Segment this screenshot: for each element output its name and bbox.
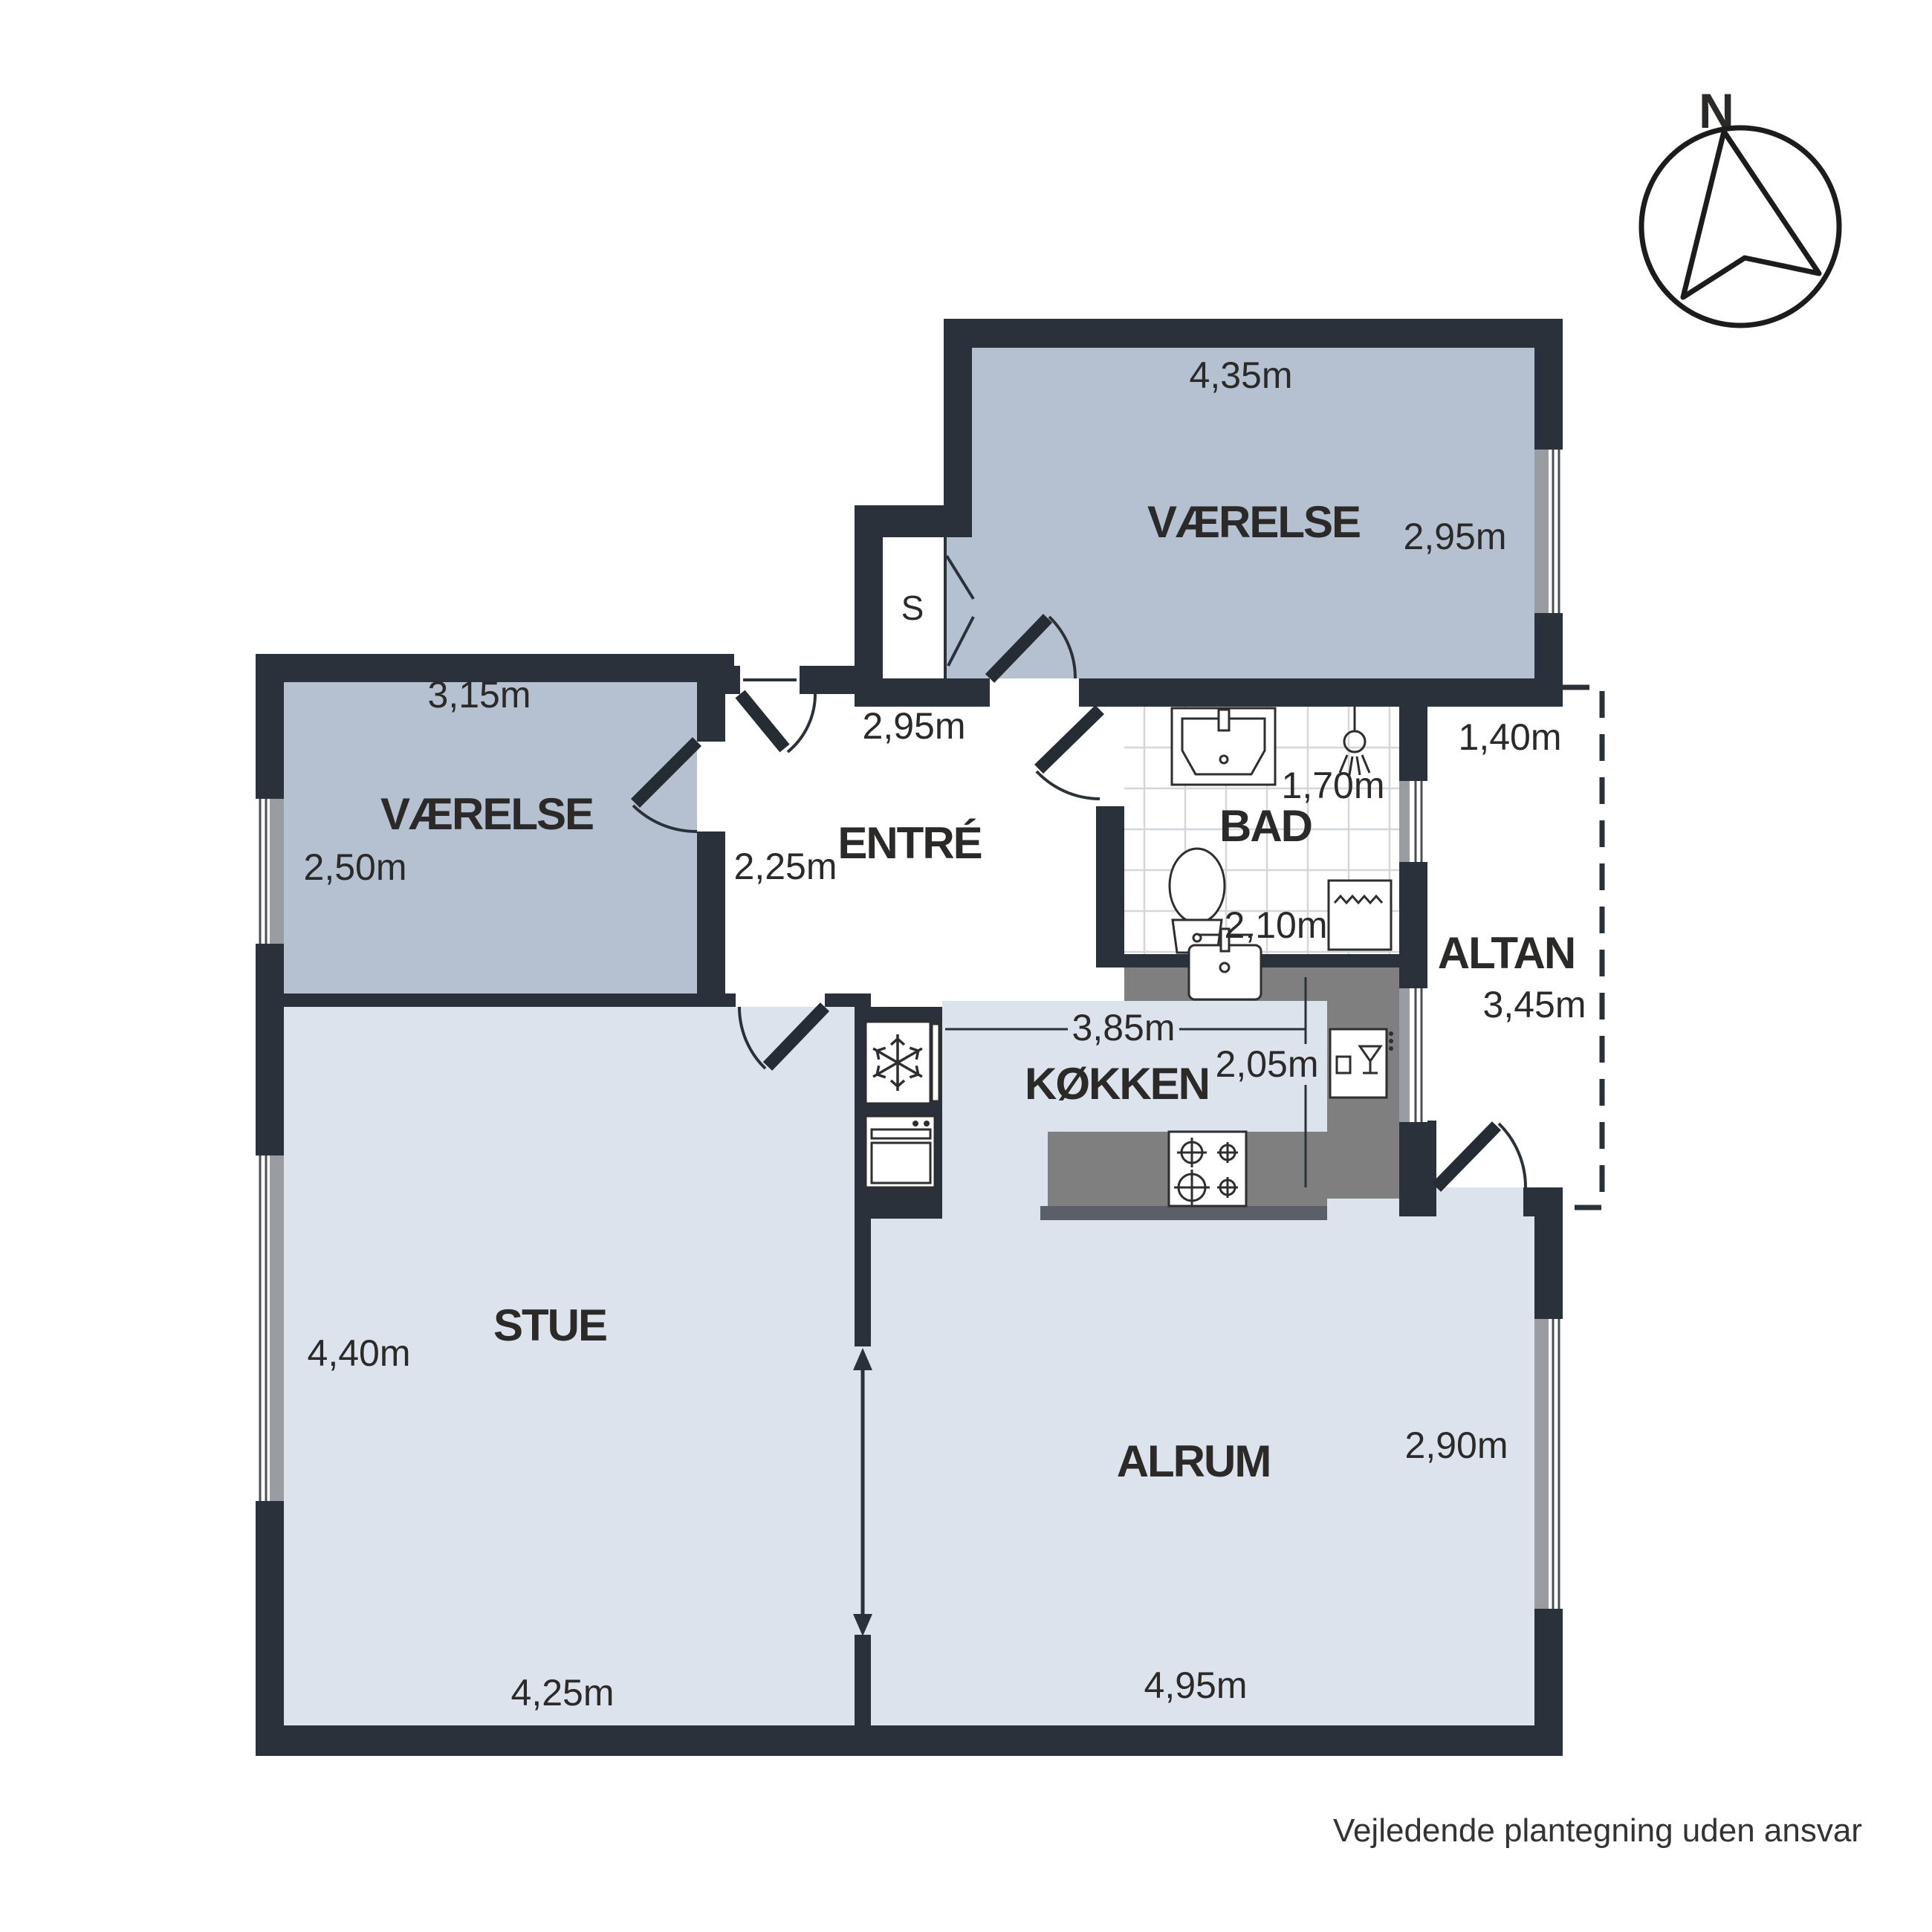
bathroom-sink-icon [1172,708,1275,785]
dim-koekken-depth: 2,05m [1216,1043,1319,1085]
oven-icon [866,1116,935,1187]
dim-alrum-width: 4,95m [1144,1664,1248,1706]
dim-entre-depth: 2,25m [734,846,837,887]
room-label-stue: STUE [493,1300,606,1350]
window-alrum [1534,1319,1563,1609]
dim-stue-width: 4,25m [511,1672,615,1714]
compass-icon: N [1641,83,1839,325]
room-label-bad: BAD [1219,801,1312,851]
room-label-koekken: KØKKEN [1025,1059,1209,1109]
stue-alrum-divider-stub [855,1635,871,1725]
disclaimer-text: Vejledende plantegning uden ansvar [1333,1812,1862,1849]
window-bad [1399,781,1427,862]
dim-stue-depth: 4,40m [308,1332,411,1374]
fridge-snowflake-icon [866,1022,939,1103]
room-label-altan: ALTAN [1438,928,1575,978]
room-label-alrum: ALRUM [1117,1436,1271,1486]
washing-machine-icon [1329,881,1391,950]
dim-alrum-depth: 2,90m [1405,1424,1508,1466]
dim-vaerelse-west-depth: 2,50m [304,846,407,888]
room-label-vaerelse-west: VÆRELSE [380,789,593,839]
door-bad [1037,710,1100,799]
dim-entre-width: 2,95m [863,705,966,747]
room-label-vaerelse-north: VÆRELSE [1147,497,1360,547]
window-vaerelse-north [1534,450,1563,613]
stove-burners-icon [1169,1132,1246,1206]
dim-altan-depth: 3,45m [1483,984,1586,1025]
floor-plan: 4,35m VÆRELSE 2,95m S 3,15m VÆRELSE 2,50… [0,0,1932,1932]
dishwasher-icon [1330,1029,1393,1098]
dim-altan-width: 1,40m [1459,716,1562,758]
closet-label: S [901,589,924,627]
room-label-entre: ENTRÉ [837,818,981,868]
dim-bad-depth: 2,10m [1225,904,1328,946]
window-stue [256,1155,284,1501]
dim-vaerelse-west-width: 3,15m [428,674,531,716]
dim-bad-width: 1,70m [1282,765,1385,806]
dim-koekken-width: 3,85m [1072,1007,1176,1048]
counter-island-shadow [1040,1206,1327,1220]
dim-vaerelse-north-depth: 2,95m [1404,516,1507,557]
dim-vaerelse-north-width: 4,35m [1190,354,1293,396]
toilet-icon [1170,849,1225,953]
window-koekken [1399,988,1427,1122]
window-vaerelse-west [256,799,284,944]
